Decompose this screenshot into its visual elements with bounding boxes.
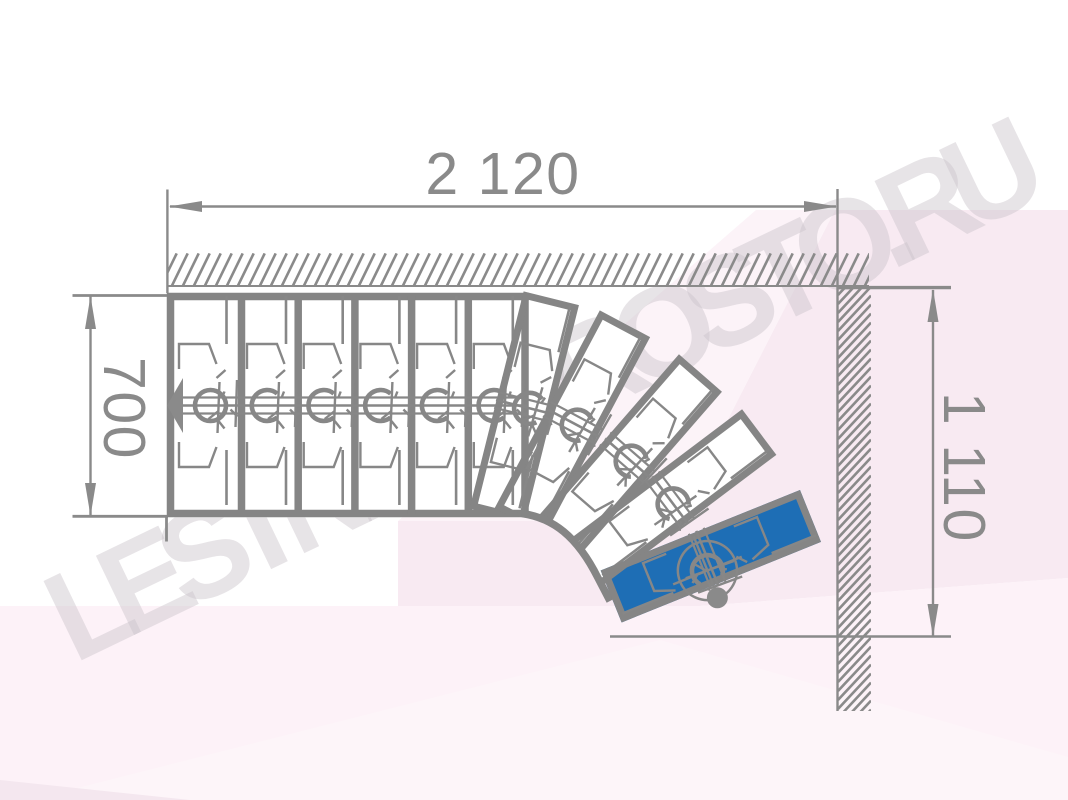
svg-text:700: 700 — [91, 357, 157, 460]
svg-text:2 120: 2 120 — [425, 141, 580, 207]
svg-text:1 110: 1 110 — [931, 392, 997, 543]
